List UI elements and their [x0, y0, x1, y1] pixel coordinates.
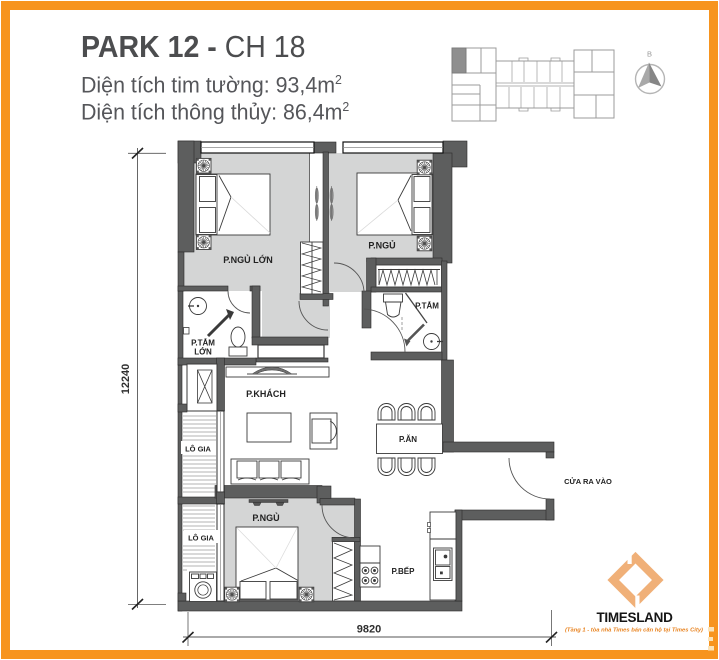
- svg-text:P.NGỦ LỚN: P.NGỦ LỚN: [223, 254, 273, 265]
- svg-text:P.KHÁCH: P.KHÁCH: [246, 389, 286, 399]
- svg-text:LỚN: LỚN: [194, 348, 212, 357]
- svg-text:CỬA RA VÀO: CỬA RA VÀO: [564, 477, 612, 486]
- svg-text:P.NGỦ: P.NGỦ: [368, 240, 395, 251]
- svg-text:P.TẮM: P.TẮM: [415, 302, 439, 311]
- svg-text:B: B: [647, 50, 652, 59]
- svg-text:12240: 12240: [120, 364, 132, 395]
- svg-text:P.BẾP: P.BẾP: [392, 566, 416, 576]
- svg-text:LÔ GIA: LÔ GIA: [185, 445, 211, 454]
- svg-text:LÔ GIA: LÔ GIA: [188, 534, 214, 543]
- svg-text:P.NGỦ: P.NGỦ: [252, 512, 279, 523]
- svg-text:P.TẮM: P.TẮM: [191, 339, 215, 348]
- svg-text:(Tầng 1 - tòa nhà Times bán că: (Tầng 1 - tòa nhà Times bán căn hộ tại T…: [565, 628, 703, 634]
- svg-text:TIMESLAND: TIMESLAND: [596, 610, 673, 625]
- svg-text:9820: 9820: [357, 624, 381, 636]
- svg-text:P.ĂN: P.ĂN: [399, 435, 417, 444]
